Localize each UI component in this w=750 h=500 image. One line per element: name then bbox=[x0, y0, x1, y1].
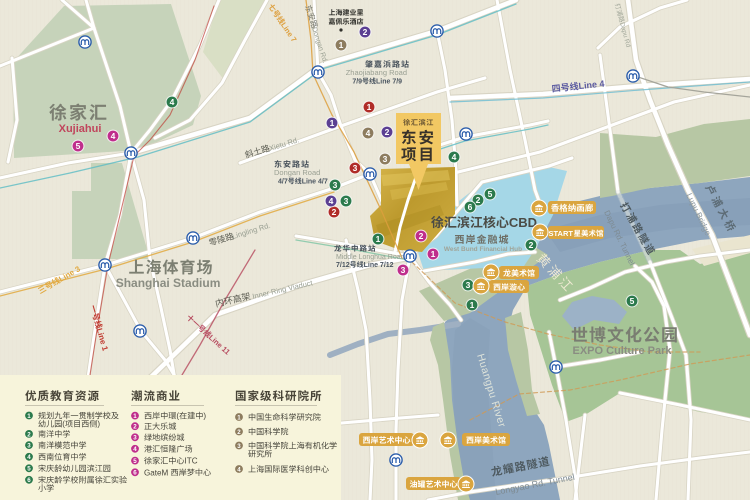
svg-text:(: ( bbox=[62, 420, 65, 429]
svg-text:Line 4/7: Line 4/7 bbox=[302, 179, 328, 186]
svg-text:4: 4 bbox=[133, 446, 137, 453]
svg-text:Dongan Road: Dongan Road bbox=[274, 168, 320, 177]
svg-text:3: 3 bbox=[344, 196, 349, 206]
svg-text:): ) bbox=[203, 412, 206, 421]
svg-text:1: 1 bbox=[367, 102, 372, 112]
svg-text:3: 3 bbox=[401, 265, 406, 275]
svg-text:1: 1 bbox=[27, 413, 31, 420]
svg-text:4: 4 bbox=[170, 97, 175, 107]
svg-text:3: 3 bbox=[333, 180, 338, 190]
svg-text:2: 2 bbox=[476, 195, 481, 205]
svg-text:4: 4 bbox=[329, 196, 334, 206]
svg-text:5: 5 bbox=[630, 296, 635, 306]
svg-text:1: 1 bbox=[330, 118, 335, 128]
svg-text:EXPO Culture Park: EXPO Culture Park bbox=[573, 345, 673, 357]
svg-text:2: 2 bbox=[237, 429, 241, 436]
svg-text:1: 1 bbox=[431, 249, 436, 259]
svg-text:Line 7/9: Line 7/9 bbox=[376, 79, 402, 86]
svg-text:GateM: GateM bbox=[144, 468, 169, 477]
svg-text:3: 3 bbox=[133, 435, 137, 442]
svg-text:1: 1 bbox=[339, 40, 344, 50]
svg-text:1: 1 bbox=[470, 300, 475, 310]
svg-text:2: 2 bbox=[133, 424, 137, 431]
svg-text:6: 6 bbox=[468, 202, 473, 212]
svg-text:4/7: 4/7 bbox=[278, 179, 288, 186]
svg-text:2: 2 bbox=[27, 431, 31, 438]
svg-text:3: 3 bbox=[27, 443, 31, 450]
svg-text:5: 5 bbox=[488, 189, 493, 199]
svg-text:3: 3 bbox=[237, 443, 241, 450]
svg-text:): ) bbox=[97, 420, 100, 429]
svg-text:5: 5 bbox=[133, 458, 137, 465]
svg-text:1: 1 bbox=[376, 234, 381, 244]
svg-text:Middle Longhua Road: Middle Longhua Road bbox=[336, 254, 405, 261]
svg-text:3: 3 bbox=[353, 163, 358, 173]
svg-text:7/12: 7/12 bbox=[336, 262, 350, 269]
svg-text:Line 7/12: Line 7/12 bbox=[364, 262, 394, 269]
svg-text:START: START bbox=[549, 229, 574, 238]
svg-text:4: 4 bbox=[366, 128, 371, 138]
svg-text:3: 3 bbox=[466, 280, 471, 290]
svg-text:Xujiahui: Xujiahui bbox=[59, 123, 102, 135]
svg-text:(: ( bbox=[176, 412, 179, 421]
svg-text:5: 5 bbox=[27, 466, 31, 473]
svg-text:Zhaojiabang Road: Zhaojiabang Road bbox=[346, 68, 407, 77]
svg-text:4: 4 bbox=[237, 466, 241, 473]
svg-text:2: 2 bbox=[385, 127, 390, 137]
svg-text:2: 2 bbox=[363, 27, 368, 37]
svg-text:4: 4 bbox=[111, 131, 116, 141]
svg-text:4: 4 bbox=[27, 454, 31, 461]
svg-text:7/9: 7/9 bbox=[352, 79, 362, 86]
svg-text:2: 2 bbox=[332, 207, 337, 217]
svg-text:1: 1 bbox=[237, 414, 241, 421]
svg-text:6: 6 bbox=[133, 470, 137, 477]
svg-text:6: 6 bbox=[27, 477, 31, 484]
svg-text:2: 2 bbox=[529, 240, 534, 250]
svg-text:5: 5 bbox=[76, 141, 81, 151]
svg-text:ITC: ITC bbox=[185, 457, 198, 466]
svg-text:2: 2 bbox=[419, 231, 424, 241]
svg-text:1: 1 bbox=[133, 413, 137, 420]
svg-text:4: 4 bbox=[452, 152, 457, 162]
svg-text:Shanghai Stadium: Shanghai Stadium bbox=[116, 276, 221, 290]
svg-text:West Bund Financial Hub: West Bund Financial Hub bbox=[444, 246, 522, 253]
svg-text:3: 3 bbox=[383, 154, 388, 164]
